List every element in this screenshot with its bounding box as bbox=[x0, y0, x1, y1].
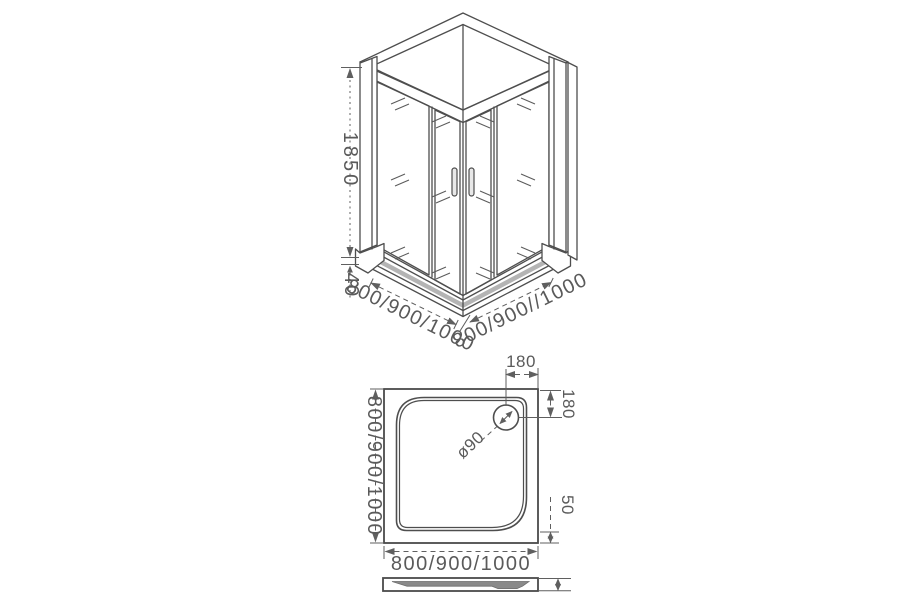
left-wall-profile bbox=[360, 57, 377, 253]
dim-label-plan-depth: 800/900/1000 bbox=[363, 396, 385, 536]
top-frame bbox=[360, 13, 568, 123]
dim-label-drain-diameter: ø90 bbox=[453, 428, 488, 463]
dim-label-plan-width: 800/900/1000 bbox=[391, 553, 531, 575]
left-fixed-panel bbox=[377, 82, 429, 275]
dim-label-drain-offset-right: 180 bbox=[559, 389, 578, 419]
right-back-post bbox=[568, 63, 577, 261]
left-face-panels bbox=[377, 82, 463, 296]
dim-plan-width: 800/900/1000 bbox=[384, 546, 538, 575]
tray-inner-contour-inner bbox=[400, 401, 524, 528]
shower-enclosure-drawing: 1850 40 800/900/1000 800/900//1000 bbox=[0, 0, 900, 600]
right-wall-profile bbox=[549, 57, 566, 253]
dim-side-height bbox=[539, 579, 571, 591]
door-handle-right bbox=[469, 168, 474, 196]
dim-height-1850: 1850 bbox=[339, 68, 362, 265]
dim-drain-offset-right: 180 bbox=[519, 389, 579, 419]
tray-inner-contour-outer bbox=[397, 398, 527, 531]
technical-drawing-page: 1850 40 800/900/1000 800/900//1000 bbox=[0, 0, 900, 600]
dim-label-height: 1850 bbox=[339, 132, 361, 189]
right-fixed-panel bbox=[497, 82, 549, 275]
right-face-panels bbox=[466, 82, 549, 294]
tray-surface-profile bbox=[392, 582, 529, 589]
dim-plan-depth: 800/900/1000 bbox=[363, 389, 385, 543]
side-view bbox=[383, 578, 571, 591]
dim-label-drain-offset-top: 180 bbox=[506, 352, 536, 371]
dim-label-rim-height: 50 bbox=[558, 495, 577, 515]
door-handle-left bbox=[452, 168, 457, 196]
dim-rim-height: 50 bbox=[540, 495, 577, 543]
plan-view: ø90 180 180 50 800/900/100 bbox=[363, 352, 578, 575]
isometric-view: 1850 40 800/900/1000 800/900//1000 bbox=[339, 13, 591, 356]
